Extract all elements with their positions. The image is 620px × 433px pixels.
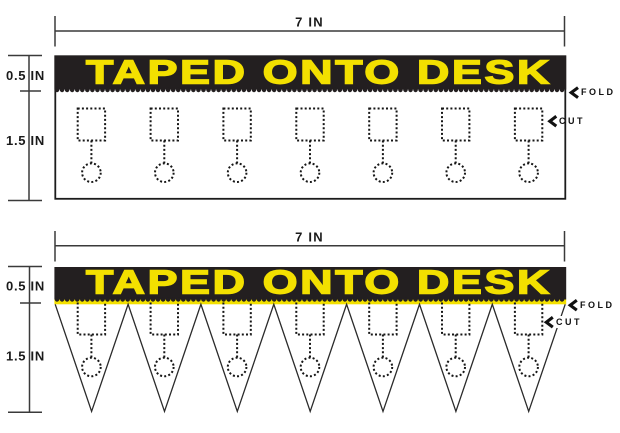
svg-text:FOLD: FOLD — [580, 300, 615, 310]
svg-text:FOLD: FOLD — [581, 87, 616, 97]
svg-text:1.5 IN: 1.5 IN — [6, 349, 45, 364]
svg-text:TAPED ONTO DESK: TAPED ONTO DESK — [86, 264, 552, 301]
svg-text:7 IN: 7 IN — [295, 229, 324, 244]
svg-text:CUT: CUT — [559, 116, 585, 126]
svg-text:0.5 IN: 0.5 IN — [6, 279, 45, 294]
svg-text:CUT: CUT — [556, 317, 582, 327]
svg-text:1.5 IN: 1.5 IN — [6, 133, 45, 148]
svg-text:7 IN: 7 IN — [295, 15, 324, 30]
svg-text:TAPED ONTO DESK: TAPED ONTO DESK — [86, 53, 552, 90]
svg-text:0.5 IN: 0.5 IN — [6, 68, 45, 83]
